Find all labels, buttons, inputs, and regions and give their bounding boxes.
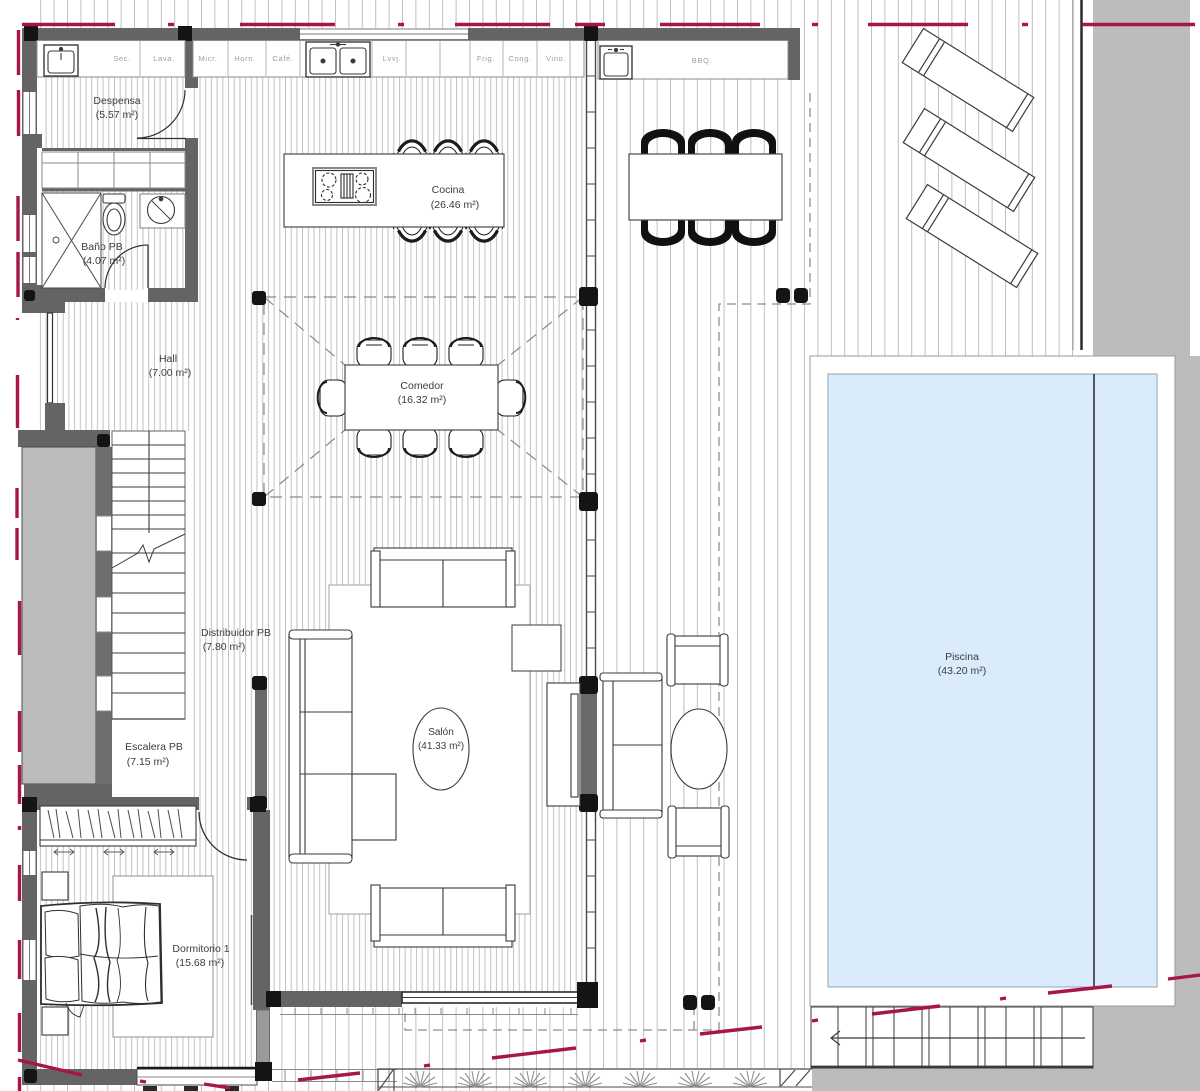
svg-text:Cong.: Cong. [508,54,531,63]
svg-text:Comedor: Comedor [400,380,444,392]
svg-text:Micr.: Micr. [198,54,217,63]
svg-text:Salón: Salón [428,727,454,738]
svg-text:Sec.: Sec. [113,54,131,63]
svg-text:Distribuidor PB: Distribuidor PB [201,627,271,639]
svg-text:(16.32 m²): (16.32 m²) [398,394,446,406]
svg-text:Café.: Café. [272,54,293,63]
svg-text:Horn.: Horn. [234,54,256,63]
svg-text:(7.15 m²): (7.15 m²) [127,756,170,768]
svg-text:Hall: Hall [159,353,177,365]
svg-text:(15.68 m²): (15.68 m²) [176,957,224,969]
svg-text:Dormitorio 1: Dormitorio 1 [172,943,229,955]
svg-text:Lava.: Lava. [153,54,175,63]
svg-text:Frig.: Frig. [477,54,495,63]
svg-text:Baño PB: Baño PB [81,241,122,253]
svg-text:Escalera PB: Escalera PB [125,741,183,753]
svg-text:Piscina: Piscina [945,651,979,663]
svg-text:(5.57 m²): (5.57 m²) [96,109,139,121]
svg-text:(43.20 m²): (43.20 m²) [938,665,986,677]
svg-text:Despensa: Despensa [93,95,140,107]
svg-text:BBQ.: BBQ. [692,56,713,65]
svg-text:Lvvj.: Lvvj. [383,54,402,63]
svg-text:Cocina: Cocina [432,184,465,196]
svg-text:(41.33 m²): (41.33 m²) [418,741,464,752]
svg-text:(7.80 m²): (7.80 m²) [203,641,246,653]
svg-text:Vino.: Vino. [546,54,566,63]
svg-text:(26.46 m²): (26.46 m²) [431,199,479,211]
svg-text:(4.07 m²): (4.07 m²) [83,255,126,267]
svg-text:(7.00 m²): (7.00 m²) [149,367,192,379]
